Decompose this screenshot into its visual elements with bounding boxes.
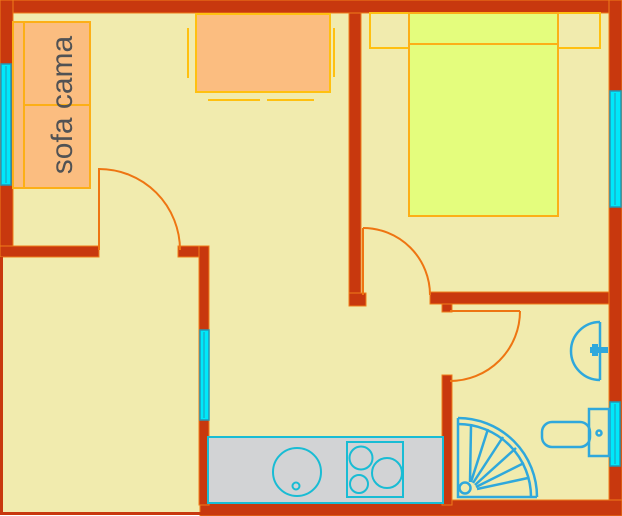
sofa-label: sofa cama [46,35,79,174]
table [196,14,330,92]
kitchen-counter [208,437,443,503]
floor-plan: sofa cama [0,0,622,516]
wall-top [0,0,622,13]
kitchen-fixtures [208,437,443,503]
wall-bedroom-bathroom [430,292,609,304]
washbasin-faucet-handle [592,344,598,356]
wall-living-bedroom [349,13,361,293]
wall-living-terrace-left [0,246,99,257]
terrace-border-bottom [0,512,203,515]
terrace-border-left [0,257,3,515]
floor-plan-canvas: sofa cama [0,0,622,516]
